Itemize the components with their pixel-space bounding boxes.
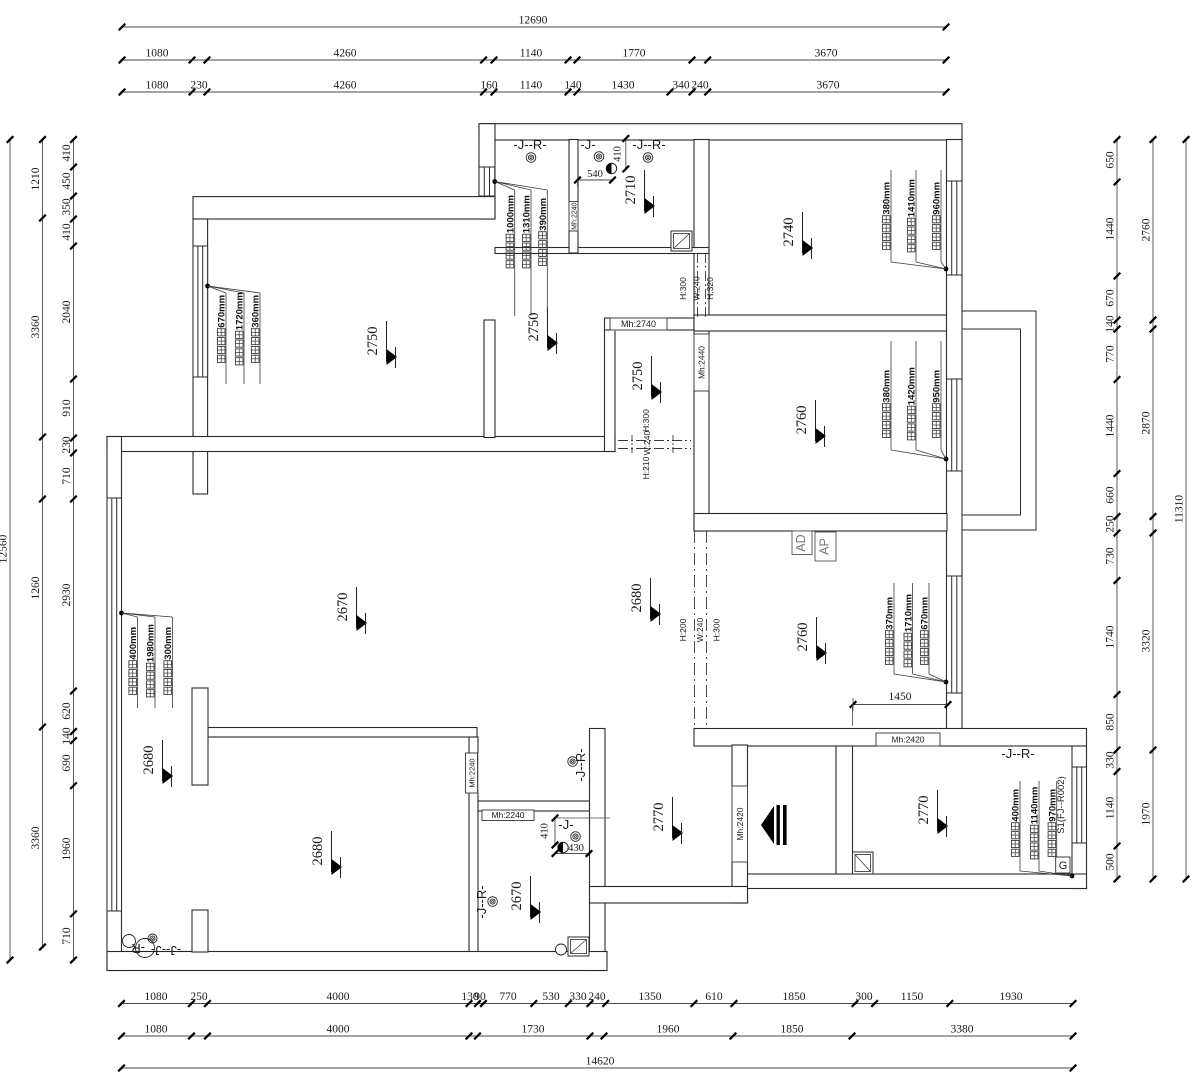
svg-text:690: 690 <box>61 754 73 772</box>
svg-text:2760: 2760 <box>1141 218 1153 241</box>
svg-text:960mm: 960mm <box>932 182 943 215</box>
svg-text:-R-: -R- <box>127 941 145 956</box>
svg-text:4260: 4260 <box>334 80 357 92</box>
svg-text:-J--R-: -J--R- <box>632 137 665 152</box>
svg-text:1350: 1350 <box>639 991 662 1003</box>
svg-text:450: 450 <box>61 172 73 190</box>
svg-text:710: 710 <box>61 467 73 485</box>
svg-text:-J-: -J- <box>580 137 595 152</box>
svg-text:500: 500 <box>1105 853 1117 871</box>
svg-text:1000mm: 1000mm <box>505 195 516 233</box>
svg-text:4000: 4000 <box>327 991 350 1003</box>
svg-text:2870: 2870 <box>1141 411 1153 434</box>
svg-text:2710: 2710 <box>623 176 639 205</box>
svg-text:-J-: -J- <box>558 817 573 832</box>
svg-text:710: 710 <box>61 927 73 945</box>
svg-text:340: 340 <box>672 80 690 92</box>
svg-text:3670: 3670 <box>817 80 840 92</box>
svg-text:2040: 2040 <box>61 300 73 323</box>
svg-text:1710mm: 1710mm <box>903 594 914 632</box>
svg-text:400mm: 400mm <box>1011 789 1022 822</box>
svg-text:H:210: H:210 <box>641 456 651 479</box>
svg-text:2740: 2740 <box>781 218 797 247</box>
svg-text:1420mm: 1420mm <box>907 367 918 405</box>
svg-text:770: 770 <box>499 991 517 1003</box>
svg-text:350: 350 <box>61 198 73 216</box>
svg-text:Mh:2740: Mh:2740 <box>621 319 656 329</box>
svg-text:390mm: 390mm <box>538 198 549 231</box>
svg-text:140: 140 <box>564 80 582 92</box>
svg-text:330: 330 <box>569 991 587 1003</box>
svg-text:4260: 4260 <box>334 48 357 60</box>
svg-text:950mm: 950mm <box>932 370 943 403</box>
svg-text:Mh:2240: Mh:2240 <box>572 202 579 229</box>
svg-text:2750: 2750 <box>526 313 542 342</box>
svg-text:1740: 1740 <box>1105 625 1117 648</box>
svg-text:2770: 2770 <box>651 803 667 832</box>
svg-text:1080: 1080 <box>145 991 168 1003</box>
svg-text:2670: 2670 <box>335 593 351 622</box>
svg-text:730: 730 <box>1105 547 1117 565</box>
svg-text:2760: 2760 <box>794 406 810 435</box>
svg-text:370mm: 370mm <box>885 597 896 630</box>
svg-text:3380: 3380 <box>951 1024 974 1036</box>
svg-text:910: 910 <box>61 399 73 417</box>
svg-text:1080: 1080 <box>146 48 169 60</box>
svg-text:1440: 1440 <box>1105 217 1117 240</box>
svg-text:1150: 1150 <box>901 991 924 1003</box>
svg-text:240: 240 <box>588 991 606 1003</box>
svg-text:1430: 1430 <box>612 80 635 92</box>
svg-text:1260: 1260 <box>30 576 42 599</box>
svg-text:360mm: 360mm <box>251 295 262 328</box>
svg-text:240: 240 <box>691 80 709 92</box>
svg-text:H:320: H:320 <box>705 277 715 300</box>
svg-text:2750: 2750 <box>630 362 646 391</box>
svg-text:Mh:2240: Mh:2240 <box>491 810 524 820</box>
svg-text:670mm: 670mm <box>920 597 931 630</box>
svg-text:250: 250 <box>1105 515 1117 533</box>
svg-text:12560: 12560 <box>0 534 10 563</box>
svg-text:1140: 1140 <box>520 80 543 92</box>
svg-text:G: G <box>1059 860 1068 872</box>
svg-text:H:200: H:200 <box>678 618 688 641</box>
svg-text:AD: AD <box>794 534 808 551</box>
svg-text:1770: 1770 <box>623 48 646 60</box>
svg-text:1850: 1850 <box>783 991 806 1003</box>
svg-text:-J--R-: -J--R- <box>513 137 546 152</box>
svg-text:-J--J-: -J--J- <box>151 943 181 958</box>
svg-text:-J--R-: -J--R- <box>474 885 489 918</box>
svg-text:330: 330 <box>1105 751 1117 769</box>
svg-text:1440: 1440 <box>1105 414 1117 437</box>
svg-text:2680: 2680 <box>629 584 645 613</box>
svg-text:850: 850 <box>1105 713 1117 731</box>
svg-text:300: 300 <box>855 991 873 1003</box>
svg-text:140: 140 <box>1105 315 1117 333</box>
svg-text:160: 160 <box>480 80 498 92</box>
svg-text:H:300: H:300 <box>641 409 651 432</box>
svg-text:2680: 2680 <box>310 837 326 866</box>
svg-text:Mh:2440: Mh:2440 <box>697 346 707 379</box>
svg-text:2770: 2770 <box>916 796 932 825</box>
svg-text:2670: 2670 <box>509 882 525 911</box>
svg-text:670: 670 <box>1105 289 1117 307</box>
svg-text:400mm: 400mm <box>128 627 139 660</box>
svg-text:1080: 1080 <box>146 80 169 92</box>
svg-text:Mh:2420: Mh:2420 <box>891 735 924 745</box>
svg-text:W:240: W:240 <box>692 276 702 301</box>
svg-text:2930: 2930 <box>61 583 73 606</box>
svg-text:230: 230 <box>61 436 73 454</box>
svg-text:2680: 2680 <box>141 746 157 775</box>
svg-text:1850: 1850 <box>781 1024 804 1036</box>
svg-text:1310mm: 1310mm <box>522 195 533 233</box>
svg-text:3360: 3360 <box>30 315 42 338</box>
svg-text:2760: 2760 <box>795 623 811 652</box>
svg-text:1410mm: 1410mm <box>907 179 918 217</box>
svg-text:1730: 1730 <box>522 1024 545 1036</box>
svg-text:3670: 3670 <box>815 48 838 60</box>
svg-text:650: 650 <box>1105 151 1117 169</box>
svg-text:3360: 3360 <box>30 826 42 849</box>
svg-text:1930: 1930 <box>1000 991 1023 1003</box>
svg-text:W:240: W:240 <box>695 618 705 643</box>
svg-text:1450: 1450 <box>889 691 912 703</box>
svg-text:1140mm: 1140mm <box>1030 787 1041 825</box>
svg-text:-J--R-: -J--R- <box>1001 746 1034 761</box>
svg-text:410: 410 <box>61 223 73 241</box>
svg-text:1970: 1970 <box>1141 802 1153 825</box>
svg-text:410: 410 <box>613 146 624 162</box>
svg-text:380mm: 380mm <box>882 370 893 403</box>
svg-text:430: 430 <box>568 843 584 854</box>
svg-text:4000: 4000 <box>327 1024 350 1036</box>
svg-text:1140: 1140 <box>520 48 543 60</box>
svg-text:300mm: 300mm <box>163 627 174 660</box>
svg-text:12690: 12690 <box>519 15 548 27</box>
svg-text:1980mm: 1980mm <box>146 624 157 662</box>
svg-text:1080: 1080 <box>145 1024 168 1036</box>
svg-text:H:300: H:300 <box>678 277 688 300</box>
svg-text:230: 230 <box>190 80 208 92</box>
svg-text:410: 410 <box>540 823 551 839</box>
svg-text:1960: 1960 <box>61 837 73 860</box>
svg-text:H:300: H:300 <box>712 618 722 641</box>
svg-text:W:240: W:240 <box>642 431 652 456</box>
svg-text:3320: 3320 <box>1141 629 1153 652</box>
svg-text:610: 610 <box>705 991 723 1003</box>
svg-text:14620: 14620 <box>586 1056 615 1068</box>
svg-text:540: 540 <box>587 169 603 180</box>
svg-text:250: 250 <box>190 991 208 1003</box>
svg-text:530: 530 <box>542 991 560 1003</box>
svg-text:770: 770 <box>1105 345 1117 363</box>
svg-text:660: 660 <box>1105 486 1117 504</box>
svg-text:Mh:2240: Mh:2240 <box>468 758 477 787</box>
svg-text:670mm: 670mm <box>217 295 228 328</box>
svg-text:1720mm: 1720mm <box>235 292 246 330</box>
svg-text:1140: 1140 <box>1105 796 1117 819</box>
svg-text:90: 90 <box>474 991 486 1003</box>
svg-text:S1(FJ--R002): S1(FJ--R002) <box>1056 776 1067 834</box>
svg-text:2750: 2750 <box>365 327 381 356</box>
svg-text:620: 620 <box>61 702 73 720</box>
svg-text:1960: 1960 <box>657 1024 680 1036</box>
svg-text:11310: 11310 <box>1174 495 1186 524</box>
svg-text:AP: AP <box>818 538 832 555</box>
svg-text:Mh:2420: Mh:2420 <box>735 807 745 840</box>
svg-text:1210: 1210 <box>30 167 42 190</box>
svg-text:410: 410 <box>61 144 73 162</box>
svg-text:140: 140 <box>61 727 73 745</box>
svg-text:380mm: 380mm <box>882 182 893 215</box>
